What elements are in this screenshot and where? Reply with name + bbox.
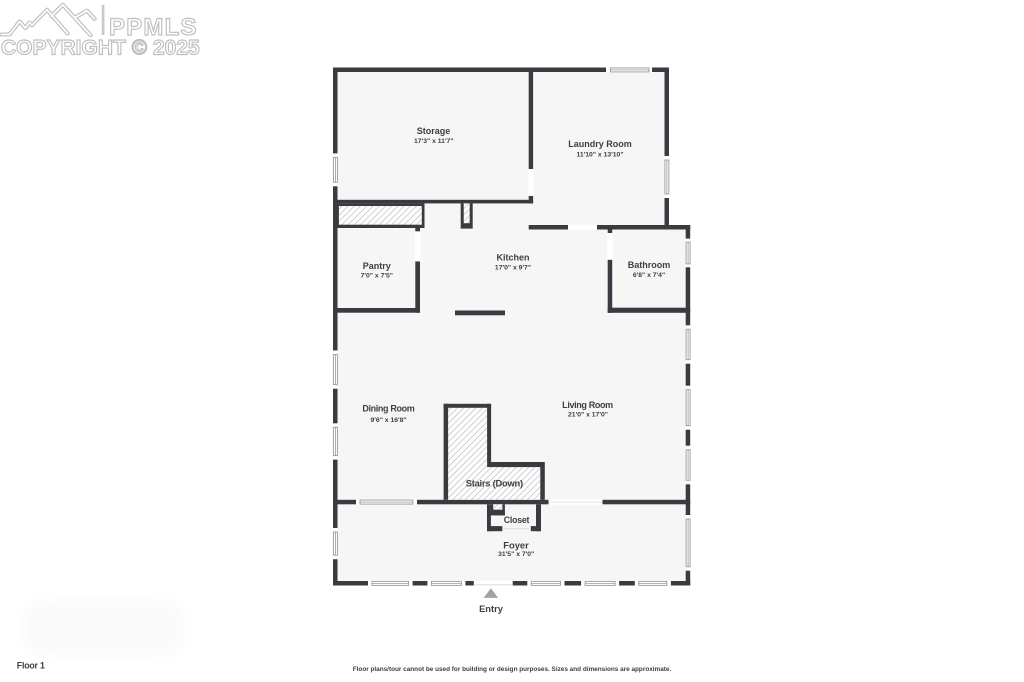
svg-text:9'6" x 16'8": 9'6" x 16'8" <box>371 417 407 424</box>
svg-text:COPYRIGHT © 2025: COPYRIGHT © 2025 <box>1 37 200 60</box>
svg-text:21'0" x 17'0": 21'0" x 17'0" <box>568 411 608 418</box>
svg-text:17'3" x 11'7": 17'3" x 11'7" <box>414 138 454 145</box>
svg-text:Storage: Storage <box>417 126 451 136</box>
svg-text:7'0" x 7'5": 7'0" x 7'5" <box>361 273 393 280</box>
svg-text:Foyer: Foyer <box>503 540 529 551</box>
svg-text:11'10" x 13'10": 11'10" x 13'10" <box>576 151 623 158</box>
svg-text:31'5" x 7'0": 31'5" x 7'0" <box>498 551 534 558</box>
svg-text:17'0" x 9'7": 17'0" x 9'7" <box>495 265 531 272</box>
svg-text:Dining Room: Dining Room <box>362 404 414 414</box>
svg-text:Stairs (Down): Stairs (Down) <box>466 477 523 488</box>
svg-text:Bathroom: Bathroom <box>628 260 671 270</box>
svg-text:Closet: Closet <box>504 515 530 525</box>
svg-text:Floor plans/tour cannot be use: Floor plans/tour cannot be used for buil… <box>353 666 672 673</box>
svg-text:Entry: Entry <box>479 604 504 614</box>
svg-text:Laundry Room: Laundry Room <box>568 139 632 149</box>
svg-text:Floor 1: Floor 1 <box>17 660 45 670</box>
svg-text:Pantry: Pantry <box>363 261 391 271</box>
svg-text:Living Room: Living Room <box>562 400 613 410</box>
svg-text:Kitchen: Kitchen <box>496 253 529 263</box>
svg-text:6'8" x 7'4": 6'8" x 7'4" <box>633 272 665 279</box>
